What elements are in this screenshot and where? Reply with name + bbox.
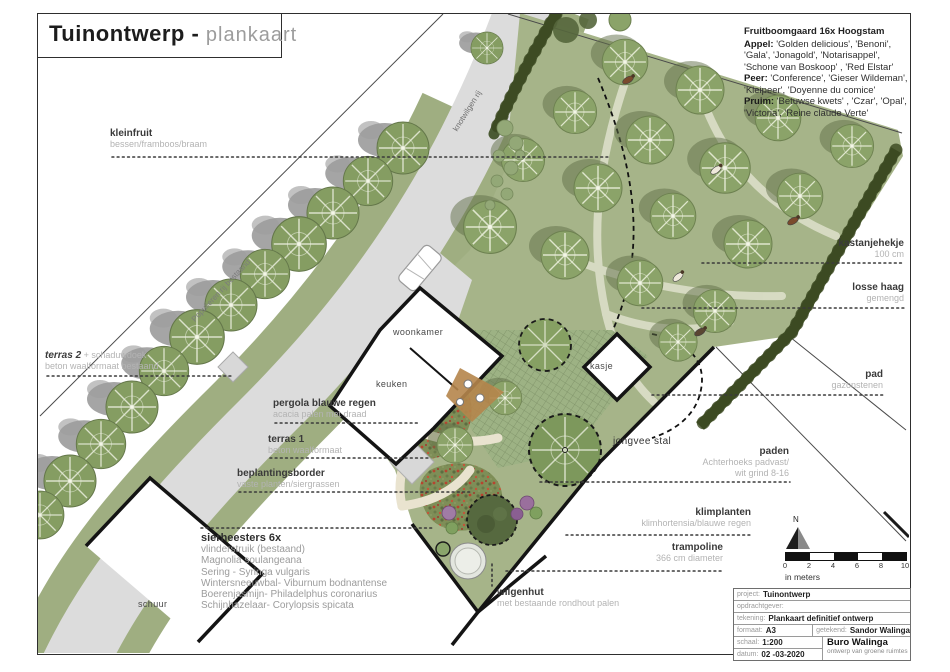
label-sierheesters: sierheesters 6x vlinderstruik (bestaand)… [201,532,387,612]
firm-subtitle: ontwerp van groene ruimtes [827,647,910,656]
label-losse-haag: losse haag gemengd [852,282,904,304]
date-value: 02 -03-2020 [761,650,804,659]
tb-scale-date-cells: schaal: 1:200 datum: 02 -03-2020 [734,637,823,660]
terras2-suffix: + schaduwdoek [81,350,146,360]
paden-title: paden [702,446,789,457]
scale-tick: 2 [807,561,811,570]
label-jongvee-stal: jongvee stal [613,436,671,447]
klimplanten-sub: klimhortensia/blauwe regen [641,518,751,529]
scale-tick: 8 [879,561,883,570]
label-pergola: pergola blauwe regen acacia palen met dr… [273,398,376,420]
label-kasje: kasje [590,361,613,371]
scale-ticks: 0 2 4 6 8 10 [785,561,907,571]
tb-project-row: project: Tuinontwerp [734,589,910,600]
scale-seg [882,553,906,560]
tb-client-row: opdrachtgever: [734,600,910,612]
klimplanten-title: klimplanten [641,507,751,518]
pear-varieties: 'Conference', 'Gieser Wildeman', 'Kleipe… [744,73,908,96]
scale-seg [786,553,810,560]
terras2-sub: beton waalformaat bestaand [45,361,159,372]
apple-label: Appel: [744,39,774,50]
orchard-note-pears: Peer: 'Conference', 'Gieser Wildeman', '… [744,73,916,96]
label-wilgenhut: wilgenhut met bestaande rondhout palen [497,587,619,609]
client-label: opdrachtgever: [734,603,784,610]
tb-scale-cell: schaal: 1:200 [734,637,822,648]
label-paden: paden Achterhoeks padvast/ wit grind 8-1… [702,446,789,479]
sierheesters-item: Schijnhazelaar- Corylopsis spicata [201,600,387,611]
pergola-sub: acacia palen met draad [273,409,376,420]
format-label: formaat: [734,627,763,634]
label-pad: pad gazonstenen [831,369,883,391]
wilgenhut-sub: met bestaande rondhout palen [497,598,619,609]
project-label: project: [734,591,760,598]
losse-haag-title: losse haag [852,282,904,293]
kastanjehekje-sub: 100 cm [838,249,904,260]
beplantingsborder-sub: vaste planten/siergrassen [237,479,340,490]
pad-sub: gazonstenen [831,380,883,391]
scale-tick: 6 [855,561,859,570]
label-keuken: keuken [376,379,407,389]
tb-drawing-row: tekening: Plankaart definitief ontwerp [734,612,910,624]
drawn-label: getekend: [813,627,847,634]
tb-date-cell: datum: 02 -03-2020 [734,648,822,660]
plum-label: Pruim: [744,96,774,107]
scale-seg [810,553,834,560]
pear-label: Peer: [744,73,768,84]
scale-bar [785,552,907,561]
title-block: project: Tuinontwerp opdrachtgever: teke… [733,588,911,661]
terras1-sub: beton waalformaat [268,445,342,456]
format-value: A3 [766,626,776,635]
pad-title: pad [831,369,883,380]
orchard-note-apples: Appel: 'Golden delicious', 'Benoni', 'Ga… [744,39,916,74]
tb-firm-cell: Buro Walinga ontwerp van groene ruimtes [823,637,910,660]
wilgenhut-title: wilgenhut [497,587,619,598]
label-beplantingsborder: beplantingsborder vaste planten/siergras… [237,468,340,490]
orchard-note-plums: Pruim: 'Betuwse kwets' , 'Czar', 'Opal',… [744,96,916,119]
orchard-note: Fruitboomgaard 16x Hoogstam Appel: 'Gold… [744,26,916,119]
north-label: N [793,515,799,524]
terras1-title: terras 1 [268,434,342,445]
label-woonkamer: woonkamer [393,327,443,337]
tb-bottom-rows: schaal: 1:200 datum: 02 -03-2020 Buro Wa… [734,636,910,660]
label-terras1: terras 1 beton waalformaat [268,434,342,456]
title-sub: plankaart [206,24,297,46]
trampoline-title: trampoline [656,542,723,553]
firm-name: Buro Walinga [827,638,910,647]
paden-sub2: wit grind 8-16 [702,468,789,479]
tb-drawn-cell: getekend: Sandor Walinga [813,625,910,636]
sierheesters-item: Sering - Syringa vulgaris [201,567,387,578]
kleinfruit-sub: bessen/framboos/braam [110,139,207,150]
sierheesters-item: Boerenjasmijn- Philadelphus coronarius [201,589,387,600]
orchard-note-title: Fruitboomgaard 16x Hoogstam [744,26,916,38]
scale-value: 1:200 [762,638,782,647]
trampoline-sub: 366 cm diameter [656,553,723,564]
label-klimplanten: klimplanten klimhortensia/blauwe regen [641,507,751,529]
kleinfruit-title: kleinfruit [110,128,207,139]
label-kleinfruit: kleinfruit bessen/framboos/braam [110,128,207,150]
scale-seg [858,553,882,560]
project-value: Tuinontwerp [763,590,810,599]
sierheesters-item: Wintersneeuwbal- Viburnum bodnantense [201,578,387,589]
sierheesters-title: sierheesters 6x [201,532,387,544]
sierheesters-item: vlinderstruik (bestaand) [201,544,387,555]
scale-tick: 4 [831,561,835,570]
scale-tick: 0 [783,561,787,570]
losse-haag-sub: gemengd [852,293,904,304]
drawing-label: tekening: [734,615,765,622]
label-trampoline: trampoline 366 cm diameter [656,542,723,564]
sierheesters-item: Magnolia soulangeana [201,555,387,566]
kastanjehekje-title: kastanjehekje [838,238,904,249]
scale-unit: in meters [785,572,820,582]
scale-label: schaal: [734,639,759,646]
tb-format-cell: formaat: A3 [734,625,813,636]
page-title: Tuinontwerp - plankaart [49,21,297,47]
drawn-value: Sandor Walinga [850,626,910,635]
terras2-title: terras 2 [45,350,81,361]
pergola-title: pergola blauwe regen [273,398,376,409]
title-main: Tuinontwerp - [49,21,199,46]
date-label: datum: [734,651,758,658]
scale-tick: 10 [901,561,909,570]
label-kastanjehekje: kastanjehekje 100 cm [838,238,904,260]
garden-plan-sheet: Tuinontwerp - plankaart Fruitboomgaard 1… [0,0,950,672]
tb-format-row: formaat: A3 getekend: Sandor Walinga [734,624,910,636]
scale-seg [834,553,858,560]
paden-sub1: Achterhoeks padvast/ [702,457,789,468]
label-schuur: schuur [138,599,167,609]
label-terras2: terras 2 + schaduwdoek beton waalformaat… [45,348,159,372]
drawing-value: Plankaart definitief ontwerp [768,614,873,623]
beplantingsborder-title: beplantingsborder [237,468,340,479]
